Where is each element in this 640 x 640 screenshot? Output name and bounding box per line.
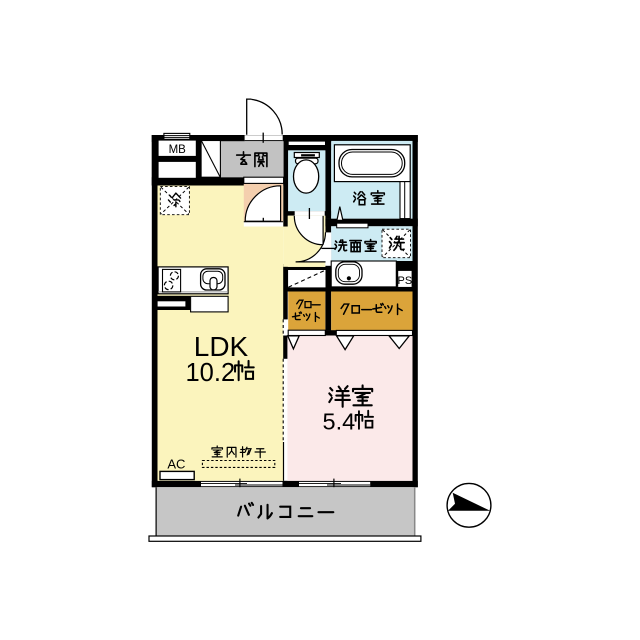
svg-text:PS: PS [398,275,413,287]
svg-text:MB: MB [169,144,187,156]
svg-text:10.2: 10.2 [186,359,236,387]
svg-text:AC: AC [167,457,185,472]
svg-text:5.4: 5.4 [323,409,356,435]
svg-text:LDK: LDK [194,331,249,362]
